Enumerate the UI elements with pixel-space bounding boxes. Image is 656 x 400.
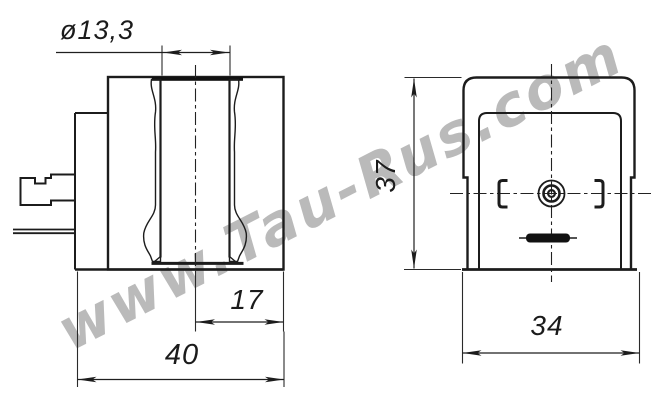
dimension-label-body-height: 37 bbox=[370, 159, 401, 193]
dimension-label-bore-offset: 17 bbox=[230, 284, 264, 315]
dimension-label-body-width: 34 bbox=[530, 310, 563, 341]
dimension-label-bore-diameter: ø13,3 bbox=[60, 15, 134, 45]
dimension-bore-offset: 17 bbox=[196, 272, 284, 332]
dimension-body-width: 34 bbox=[463, 272, 640, 364]
dimension-label-overall-width: 40 bbox=[165, 339, 199, 371]
side-view: 37 34 bbox=[370, 64, 654, 364]
lower-slot bbox=[519, 234, 577, 243]
dimension-body-height: 37 bbox=[370, 78, 462, 270]
lead-wire bbox=[13, 230, 75, 234]
mounting-step bbox=[75, 113, 108, 270]
terminal-tab bbox=[21, 175, 76, 206]
dimension-bore-diameter: ø13,3 bbox=[56, 15, 230, 76]
drawing-canvas: www.Tau-Rus.com bbox=[0, 0, 656, 400]
front-section-view: ø13,3 17 40 bbox=[13, 15, 284, 387]
coil-body-outline bbox=[75, 77, 284, 270]
side-center-lines bbox=[450, 64, 654, 282]
technical-drawing: ø13,3 17 40 bbox=[0, 0, 656, 400]
